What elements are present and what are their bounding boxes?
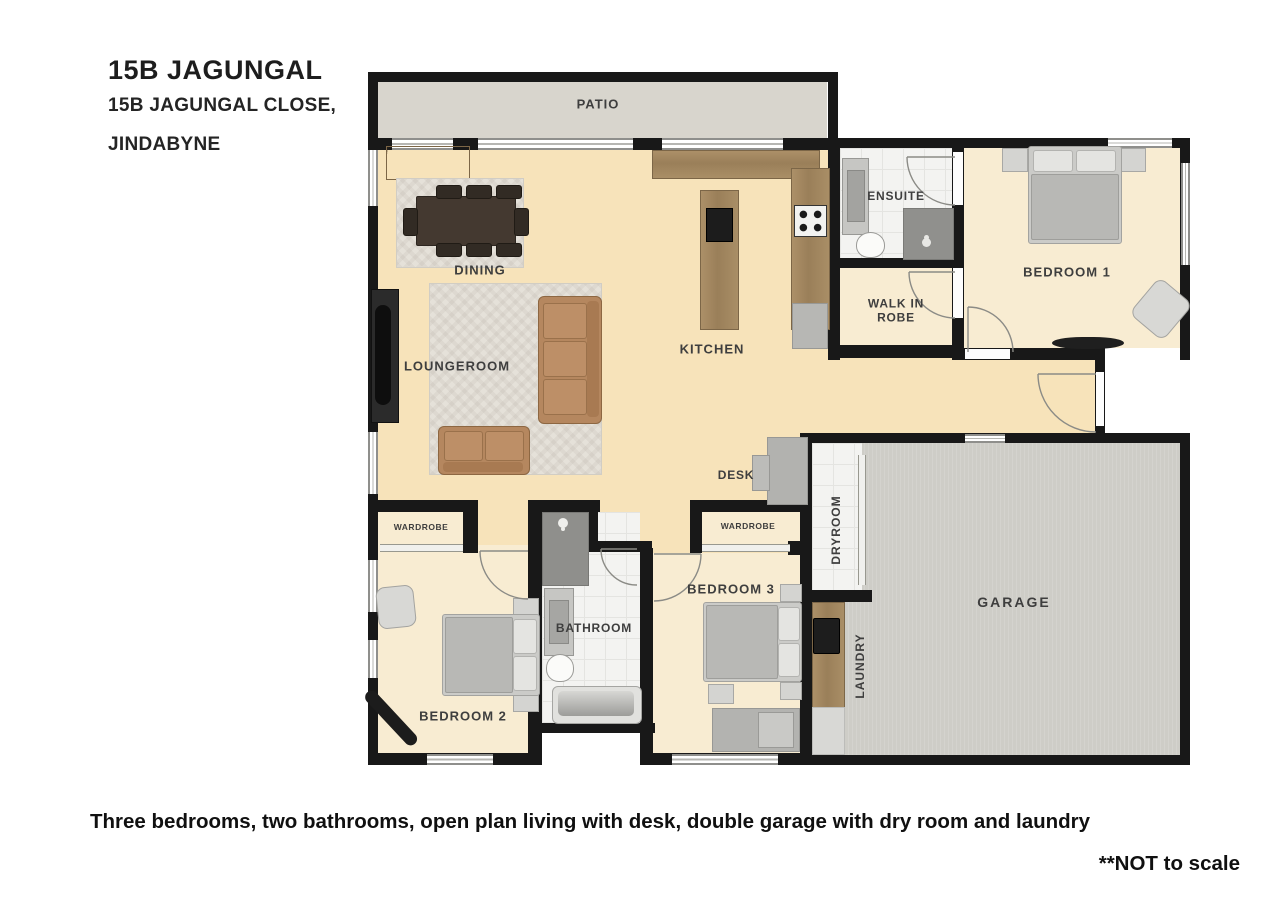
garage-label: GARAGE [977,594,1050,610]
ensuite-label: ENSUITE [867,189,925,203]
kitchen-label: KITCHEN [680,342,745,357]
bathroom-label: BATHROOM [556,621,632,635]
bathroom-door [601,549,637,585]
laundry-label: LAUNDRY [853,633,867,698]
dryroom-label: DRYROOM [829,495,843,564]
bedroom3-label: BEDROOM 3 [687,582,775,597]
dining-label: DINING [454,263,506,278]
bedroom2-label: BEDROOM 2 [419,709,507,724]
floorplan-page: 15B JAGUNGAL 15B JAGUNGAL CLOSE, JINDABY… [0,0,1280,905]
bedroom2-door [480,551,528,599]
wardrobe3-label: WARDROBE [721,521,776,531]
bedroom1-door [968,307,1013,352]
floorplan: PATIO DINING LOUNGEROOM KITCHEN DESK ENS… [0,0,1280,905]
loungeroom-label: LOUNGEROOM [404,359,510,374]
desk-label: DESK [718,468,755,482]
patio-label: PATIO [577,97,620,112]
wardrobe2-label: WARDROBE [394,522,449,532]
door-arcs [0,0,1280,905]
scale-note: **NOT to scale [1099,852,1240,876]
bedroom1-label: BEDROOM 1 [1023,265,1111,280]
entry-door [1038,374,1096,432]
description-text: Three bedrooms, two bathrooms, open plan… [90,810,1090,834]
walk-in-robe-label: WALK IN ROBE [854,297,938,326]
